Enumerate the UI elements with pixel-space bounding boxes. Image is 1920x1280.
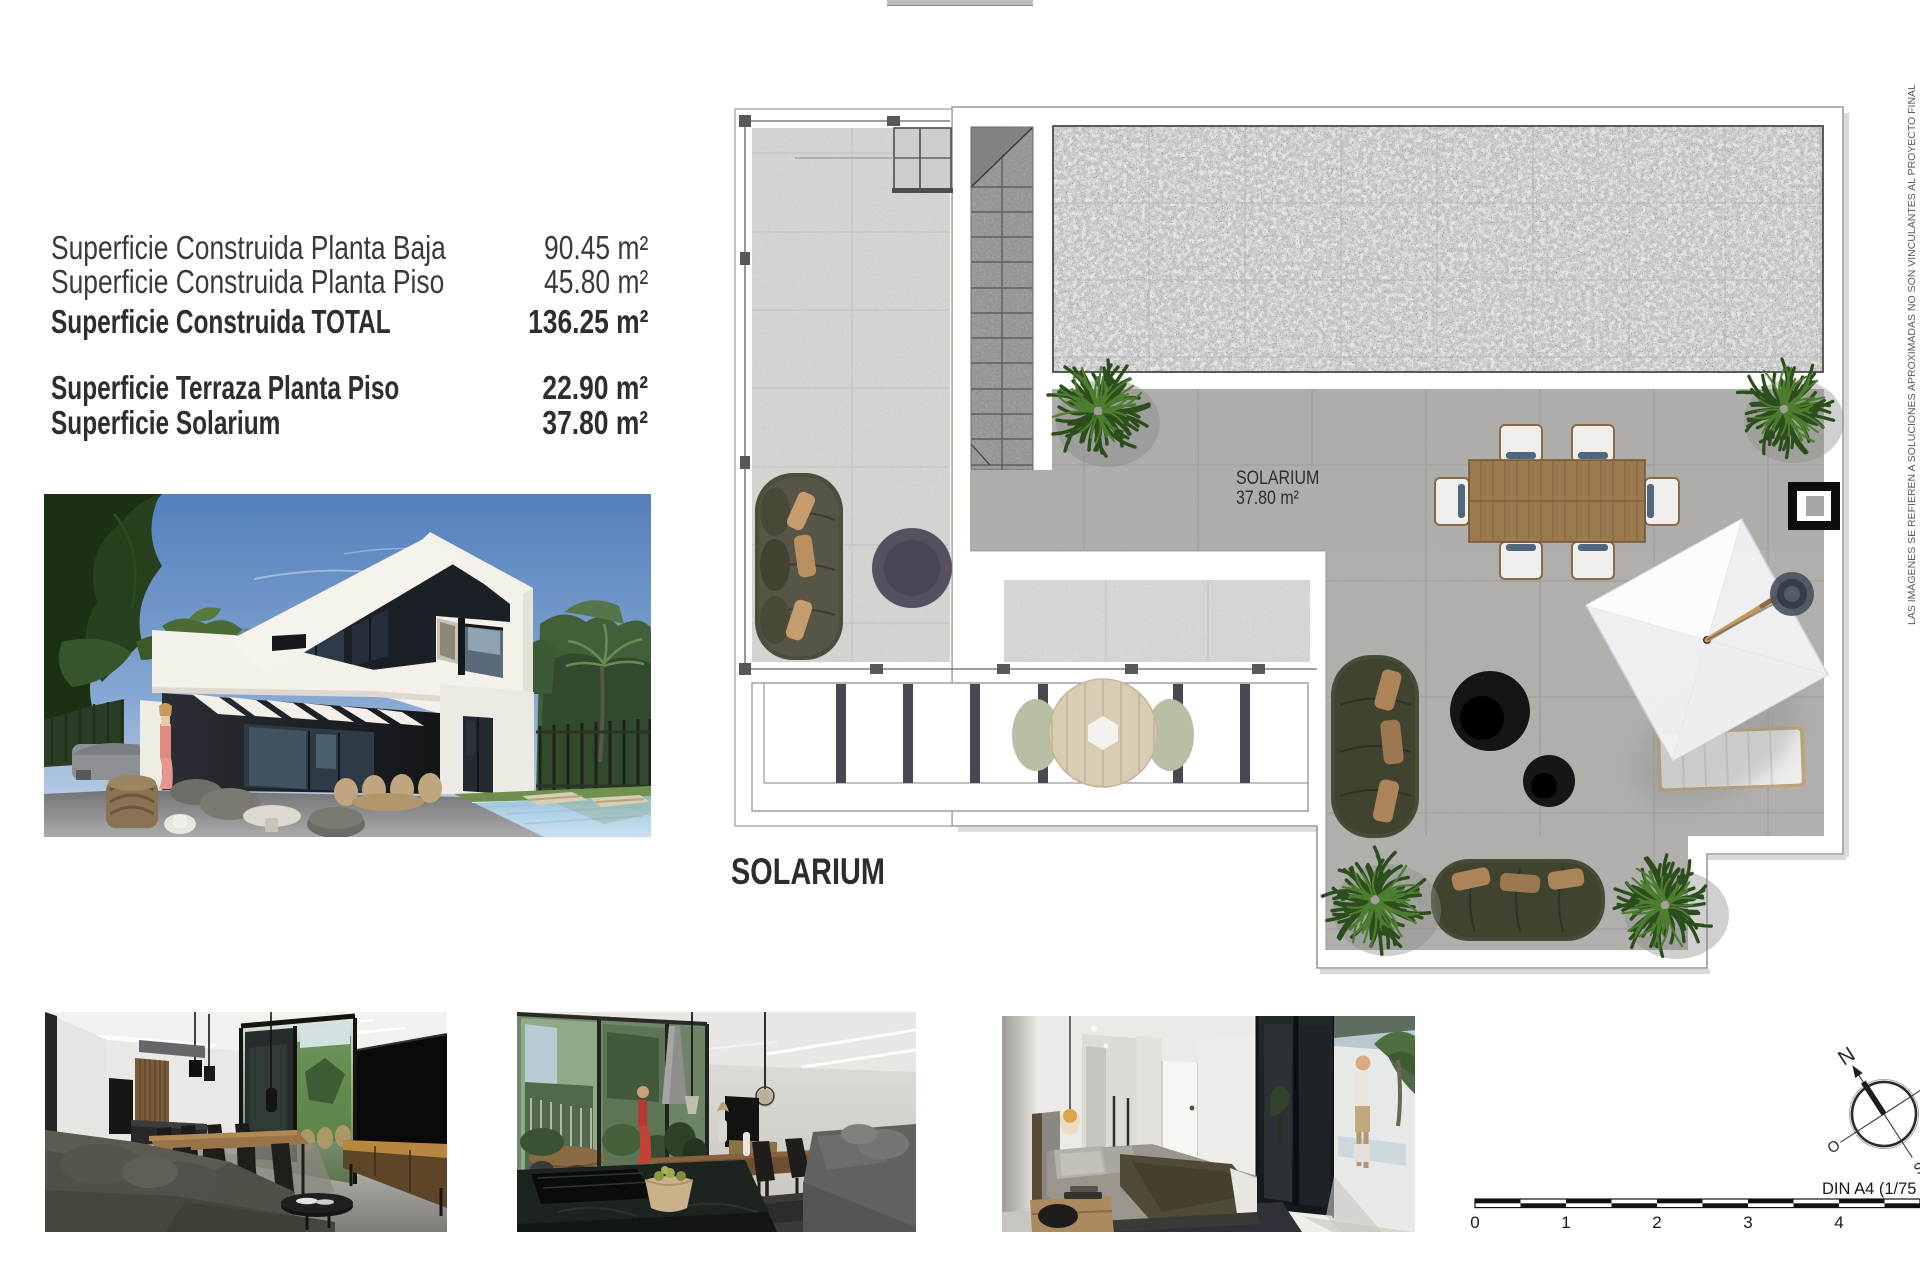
svg-text:0: 0 [1470, 1213, 1479, 1232]
svg-text:O: O [1824, 1137, 1843, 1158]
svg-text:4: 4 [1834, 1213, 1843, 1232]
svg-text:N: N [1834, 1043, 1859, 1071]
svg-text:1: 1 [1561, 1213, 1570, 1232]
svg-text:2: 2 [1652, 1213, 1661, 1232]
svg-text:DIN A4 (1/75: DIN A4 (1/75 [1822, 1180, 1916, 1198]
svg-text:37.80 m²: 37.80 m² [1236, 487, 1299, 509]
svg-text:3: 3 [1743, 1213, 1752, 1232]
svg-text:SOLARIUM: SOLARIUM [1236, 467, 1319, 489]
